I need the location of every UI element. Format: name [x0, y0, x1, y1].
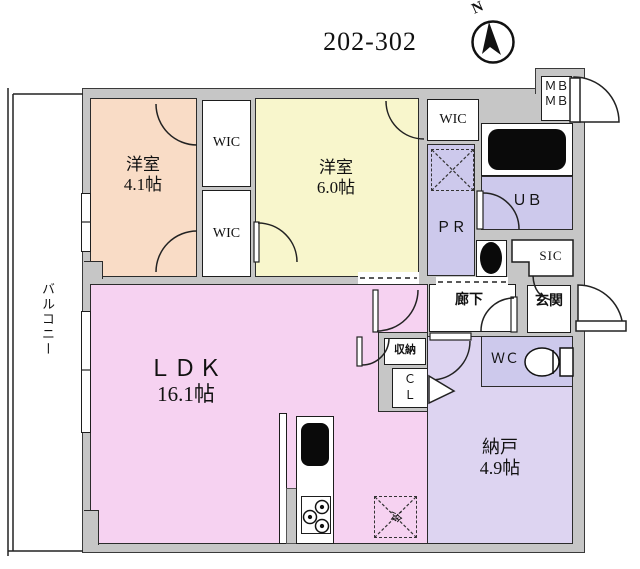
floor-plan: 202-302: [0, 0, 640, 569]
ldk-label: ＬＤＫ 16.1帖: [105, 356, 267, 407]
sic-label: SIC: [529, 249, 573, 264]
west1-size: 4.1帖: [90, 175, 196, 195]
closet-l: Ｌ: [392, 388, 428, 404]
wic2-label: WIC: [202, 226, 251, 242]
nando-size: 4.9帖: [430, 458, 570, 479]
stove-burners: [304, 501, 329, 533]
ldk-size: 16.1帖: [105, 382, 267, 406]
wash-basin: [480, 242, 502, 274]
mb-label-top: ＭＢ: [541, 79, 572, 94]
door-arc-nando: [431, 341, 470, 380]
nando-name: 納戸: [430, 437, 570, 458]
ub-label: ＵＢ: [481, 193, 573, 210]
door-arc-west2-left: [258, 223, 297, 262]
wc-label: ＷＣ: [484, 352, 526, 368]
west2-name: 洋室: [255, 158, 417, 178]
toilet: [525, 348, 573, 376]
balcony-label: バルコニー: [39, 282, 54, 357]
opening-dashes: [358, 272, 508, 286]
closet-cl-label: Ｃ Ｌ: [392, 372, 428, 403]
west1-label: 洋室 4.1帖: [90, 155, 196, 194]
nando-label: 納戸 4.9帖: [430, 437, 570, 478]
compass-icon: [473, 22, 514, 63]
door-arc-west2-top: [386, 101, 424, 139]
front-door-leaf: [576, 321, 626, 331]
ldk-name: ＬＤＫ: [105, 356, 267, 382]
west1-name: 洋室: [90, 155, 196, 175]
west2-size: 6.0帖: [255, 178, 417, 198]
closet-c: Ｃ: [392, 372, 428, 388]
window-ticks: [81, 222, 91, 370]
door-arc-west1-top: [156, 104, 197, 145]
mb-label: ＭＢ ＭＢ: [541, 79, 572, 109]
wic3-label: WIC: [427, 112, 479, 128]
fridge-label: 冷: [388, 505, 402, 529]
closet-door-arrow: [429, 376, 454, 403]
entrance-label: 玄関: [527, 294, 571, 310]
pr-label: ＰＲ: [427, 220, 475, 237]
door-arc-ldk: [377, 290, 418, 331]
door-arc-west1-bottom: [156, 231, 197, 272]
storage-label: 収納: [384, 344, 426, 357]
hallway-label: 廊下: [429, 293, 509, 309]
wic1-label: WIC: [202, 135, 251, 151]
mb-label-bottom: ＭＢ: [541, 94, 572, 109]
exterior-doors: [570, 77, 626, 331]
west2-label: 洋室 6.0帖: [255, 158, 417, 197]
